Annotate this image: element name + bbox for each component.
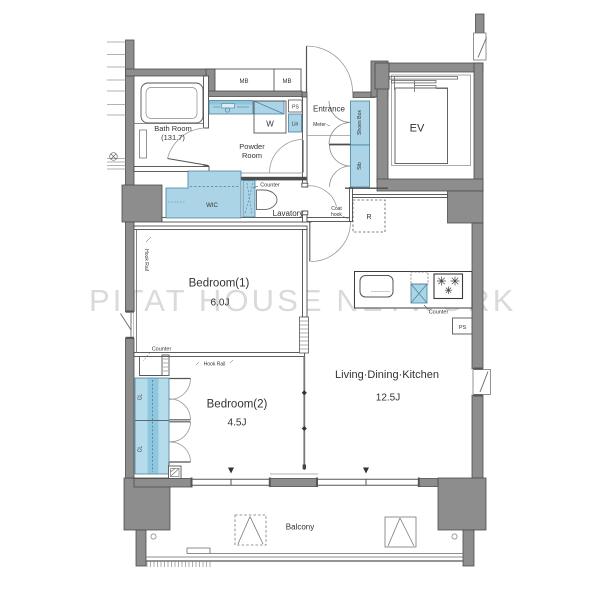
svg-text:Counter: Counter bbox=[152, 347, 172, 353]
svg-text:Lin: Lin bbox=[292, 122, 299, 128]
svg-text:EV: EV bbox=[410, 123, 425, 135]
svg-text:Bath Room: Bath Room bbox=[154, 124, 192, 133]
svg-text:Lavatory: Lavatory bbox=[273, 209, 304, 218]
svg-text:Shoes Box: Shoes Box bbox=[357, 110, 363, 135]
svg-text:Balcony: Balcony bbox=[286, 523, 314, 532]
svg-text:CL: CL bbox=[138, 394, 144, 401]
svg-text:Meter: Meter bbox=[313, 122, 326, 128]
svg-text:Bedroom(2): Bedroom(2) bbox=[207, 399, 268, 411]
svg-text:4.5J: 4.5J bbox=[228, 418, 247, 429]
svg-text:Counter: Counter bbox=[260, 183, 280, 189]
svg-text:Stb: Stb bbox=[357, 162, 363, 170]
svg-text:W: W bbox=[266, 120, 274, 129]
svg-text:MB: MB bbox=[283, 79, 292, 85]
svg-text:Living·Dining·Kitchen: Living·Dining·Kitchen bbox=[335, 369, 439, 381]
svg-text:Powder: Powder bbox=[239, 142, 265, 151]
svg-text:Room: Room bbox=[242, 151, 262, 160]
svg-text:WIC: WIC bbox=[206, 203, 218, 209]
svg-text:Hook Rail: Hook Rail bbox=[143, 249, 149, 271]
svg-text:Counter: Counter bbox=[429, 310, 449, 316]
svg-text:CL: CL bbox=[138, 446, 144, 453]
svg-text:Hook Rail: Hook Rail bbox=[204, 362, 226, 368]
svg-text:R: R bbox=[366, 214, 371, 221]
svg-text:(131.7): (131.7) bbox=[161, 133, 185, 142]
svg-text:Entrance: Entrance bbox=[313, 105, 346, 114]
svg-text:PS: PS bbox=[459, 325, 467, 331]
svg-text:12.5J: 12.5J bbox=[376, 393, 400, 404]
svg-text:PS: PS bbox=[292, 105, 299, 111]
svg-text:Bedroom(1): Bedroom(1) bbox=[189, 278, 250, 290]
svg-text:MB: MB bbox=[240, 79, 249, 85]
svg-text:hook: hook bbox=[331, 212, 342, 218]
svg-text:6.0J: 6.0J bbox=[211, 298, 230, 309]
